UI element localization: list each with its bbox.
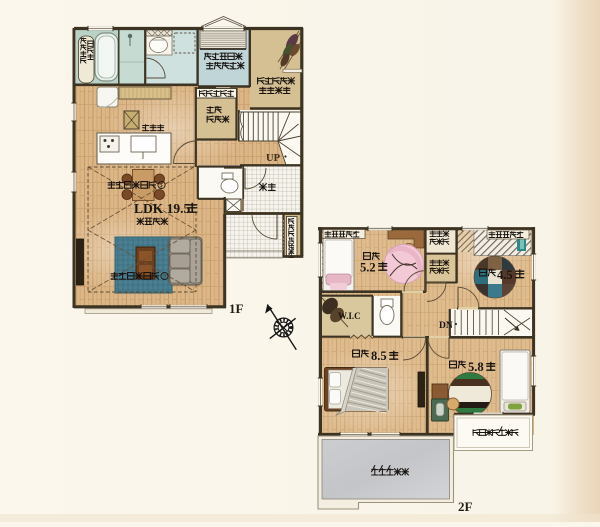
svg-text:1: 1 [160, 184, 163, 190]
svg-text:UP: UP [266, 153, 281, 164]
svg-text:W.I.C: W.I.C [338, 311, 361, 321]
svg-text:5.8: 5.8 [468, 360, 484, 374]
svg-text:8.5: 8.5 [371, 349, 387, 363]
svg-text:2F: 2F [458, 499, 473, 514]
svg-text:2: 2 [163, 275, 166, 281]
svg-text:5.2: 5.2 [360, 261, 376, 275]
svg-text:DN: DN [439, 321, 453, 331]
svg-text:LDK 19.5: LDK 19.5 [134, 201, 191, 216]
svg-text:4.5: 4.5 [497, 268, 513, 282]
svg-text:1F: 1F [229, 301, 244, 316]
